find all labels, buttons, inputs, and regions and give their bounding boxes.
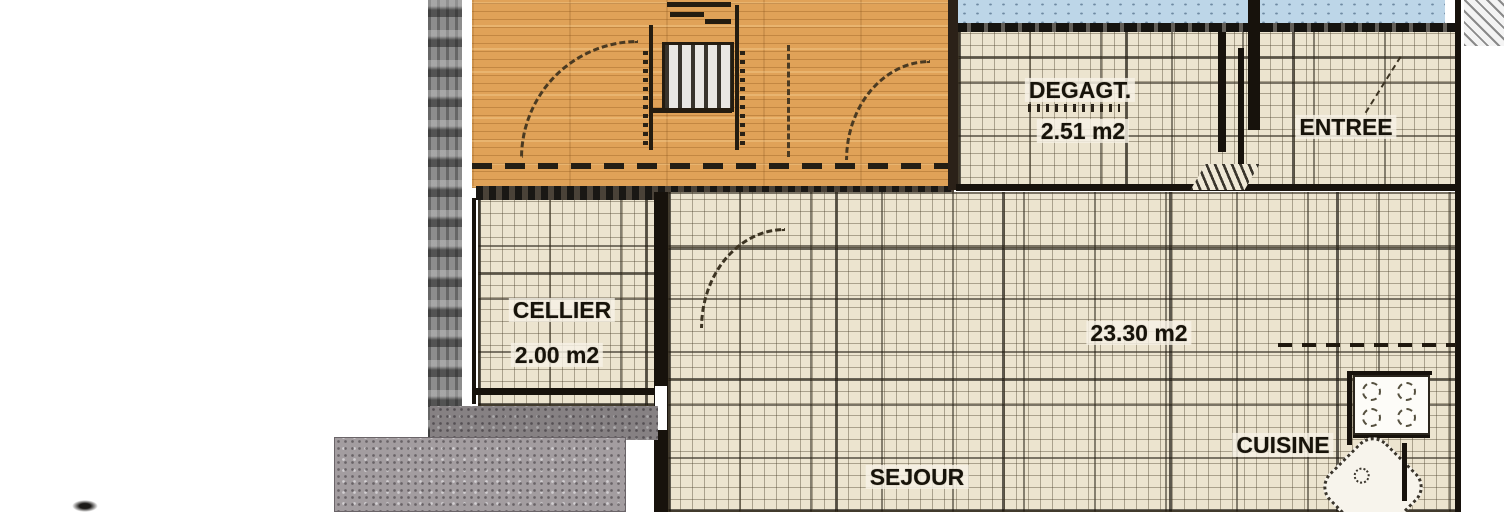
stairs-step-icon	[667, 2, 731, 7]
sink-drain-icon	[1350, 464, 1373, 487]
floor-plan: DEGAGT. 2.51 m2 ENTREE CELLIER 2.00 m2 2…	[0, 0, 1504, 512]
room-label-entree: ENTREE	[1295, 115, 1396, 139]
room-label-cellier: CELLIER	[509, 298, 615, 322]
room-label-degagt: DEGAGT.	[1025, 78, 1135, 102]
hall-inner-wall	[1238, 48, 1244, 176]
hall-inner-wall	[1218, 32, 1226, 152]
burner-icon	[1397, 382, 1416, 401]
wood-deck-terrace	[472, 0, 954, 188]
pool-water-band	[958, 0, 1445, 23]
stove-hob-icon	[1353, 375, 1430, 435]
stairs-step-icon	[652, 108, 732, 113]
kitchen-wall-stub	[1402, 443, 1407, 501]
room-area-sejour: 23.30 m2	[1086, 321, 1191, 345]
stairs-step-icon	[670, 12, 704, 17]
burner-icon	[1362, 408, 1381, 427]
room-area-degagt: 2.51 m2	[1037, 119, 1129, 143]
ink-mark	[72, 500, 98, 512]
top-wall	[950, 23, 1458, 32]
deck-hall-wall	[948, 0, 958, 190]
exterior-stair-hatch	[1436, 370, 1504, 512]
stairs-ticks-icon	[643, 50, 648, 145]
room-label-cuisine: CUISINE	[1232, 433, 1333, 457]
corner-hatch	[1464, 0, 1504, 46]
hob-side-wall	[1347, 371, 1352, 445]
stairs-rail-icon	[649, 25, 653, 150]
stairs-rail-icon	[735, 5, 739, 150]
exterior-stair-hatch	[1468, 170, 1504, 372]
door-swing-arc-icon	[520, 40, 638, 158]
deck-edge-dashed-line	[472, 163, 954, 169]
cellier-left-wall	[472, 198, 476, 404]
room-label-sejour: SEJOUR	[866, 465, 969, 489]
burner-icon	[1397, 408, 1416, 427]
door-swing-arc-icon	[845, 60, 930, 160]
stairs-treads-icon	[662, 42, 734, 112]
cuisine-dashed-wall	[1278, 343, 1456, 347]
burner-icon	[1362, 382, 1381, 401]
cellier-bottom-wall	[474, 388, 656, 395]
driveway	[334, 437, 626, 512]
retaining-wall-band	[430, 406, 658, 440]
hall-partition-wall	[1248, 0, 1260, 130]
sejour-left-wall	[654, 192, 668, 512]
door-swing-line-icon	[787, 45, 790, 157]
degagt-door-ticks	[1028, 104, 1120, 112]
stairs-ticks-icon	[740, 48, 745, 145]
stairs-step-icon	[705, 19, 731, 24]
room-area-cellier: 2.00 m2	[511, 343, 603, 367]
hedge-strip	[428, 0, 462, 437]
